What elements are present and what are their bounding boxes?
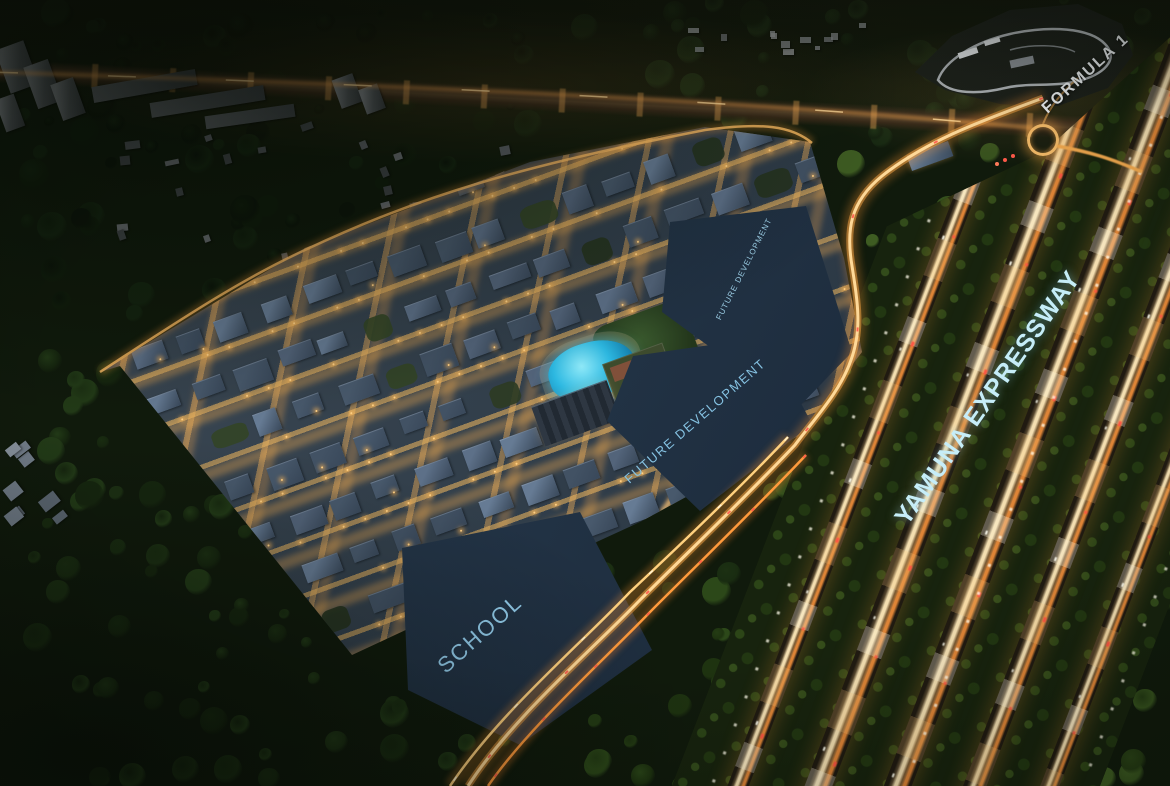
aerial-render-scene: FORMULA 1 YAMUNA EXPRESSWAY FUTURE DEVEL…	[0, 0, 1170, 786]
interchange-ramp	[1057, 146, 1142, 172]
perimeter-road	[100, 126, 812, 372]
